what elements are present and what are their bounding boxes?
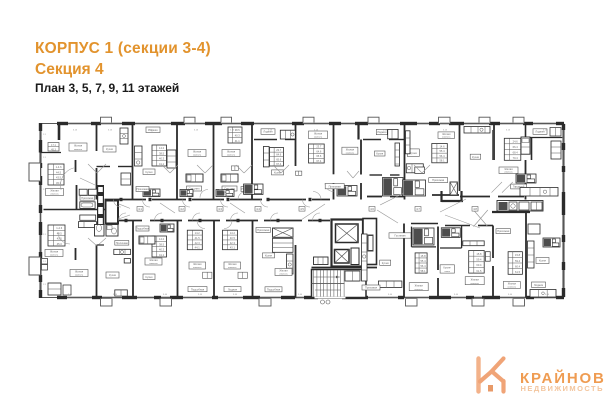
svg-text:Прихожая: Прихожая <box>81 196 94 200</box>
svg-text:Жилая: Жилая <box>74 144 83 148</box>
svg-text:15.8: 15.8 <box>420 254 426 258</box>
svg-text:2.1: 2.1 <box>43 157 47 159</box>
svg-text:Кухня: Кухня <box>146 170 154 174</box>
svg-text:61.5: 61.5 <box>476 269 482 273</box>
svg-text:комната: комната <box>415 289 424 291</box>
svg-text:55.4: 55.4 <box>439 149 445 153</box>
svg-text:Подсобная: Подсобная <box>191 287 205 291</box>
svg-text:Кухня-: Кухня- <box>443 266 451 270</box>
svg-text:42.3: 42.3 <box>230 241 236 245</box>
svg-text:Жилая: Жилая <box>227 150 236 154</box>
svg-text:56.4: 56.4 <box>420 264 426 268</box>
svg-text:комната: комната <box>50 255 59 257</box>
svg-text:Кухня: Кухня <box>539 259 547 263</box>
svg-text:3.40: 3.40 <box>298 294 303 296</box>
svg-text:Кухня: Кухня <box>109 273 117 277</box>
svg-text:55.4: 55.4 <box>420 259 426 263</box>
svg-text:Жилая: Жилая <box>75 270 84 274</box>
svg-text:4.3: 4.3 <box>218 207 222 211</box>
svg-text:Прихожая: Прихожая <box>116 241 129 245</box>
svg-text:комната: комната <box>504 172 513 174</box>
svg-text:4.6: 4.6 <box>370 207 374 211</box>
svg-text:3.40: 3.40 <box>163 294 168 296</box>
svg-text:14.2: 14.2 <box>195 231 201 235</box>
svg-text:Жилая: Жилая <box>442 132 451 136</box>
svg-text:64.6: 64.6 <box>316 149 322 153</box>
svg-text:Прихожая: Прихожая <box>257 228 270 232</box>
svg-text:43.1: 43.1 <box>230 246 236 250</box>
svg-text:2.1: 2.1 <box>43 134 47 136</box>
svg-text:40.3: 40.3 <box>159 157 165 161</box>
svg-text:60.4: 60.4 <box>515 264 521 268</box>
svg-text:65.6: 65.6 <box>276 157 282 161</box>
svg-text:58.1: 58.1 <box>439 159 445 163</box>
svg-text:41.1: 41.1 <box>235 139 241 143</box>
svg-text:38.5: 38.5 <box>235 128 241 132</box>
svg-text:44.5: 44.5 <box>57 231 63 235</box>
svg-text:Кухня: Кухня <box>106 147 114 151</box>
svg-text:Жилая: Жилая <box>149 258 158 262</box>
svg-text:4.1: 4.1 <box>138 207 142 211</box>
svg-text:59.4: 59.4 <box>515 259 521 263</box>
svg-text:64.6: 64.6 <box>276 153 282 157</box>
svg-text:43.5: 43.5 <box>57 237 63 241</box>
svg-text:61.5: 61.5 <box>515 270 521 274</box>
svg-text:1-4.6: 1-4.6 <box>56 165 62 169</box>
svg-text:3.40: 3.40 <box>508 294 513 296</box>
svg-text:41.1: 41.1 <box>159 253 165 257</box>
svg-text:Жилая: Жилая <box>193 262 202 266</box>
svg-text:58.1: 58.1 <box>420 269 426 273</box>
svg-text:Жилая: Жилая <box>193 150 202 154</box>
svg-text:Гостиная: Гостиная <box>395 234 406 238</box>
svg-text:комната: комната <box>193 155 202 157</box>
svg-text:комната: комната <box>75 275 84 277</box>
svg-text:Прихожая: Прихожая <box>329 184 342 188</box>
svg-text:24.6: 24.6 <box>513 140 519 144</box>
svg-text:Жилая: Жилая <box>346 147 355 151</box>
svg-text:Жилая: Жилая <box>228 262 237 266</box>
svg-text:комната: комната <box>149 263 158 265</box>
svg-text:комната: комната <box>193 267 202 269</box>
svg-text:15.8: 15.8 <box>515 253 521 257</box>
svg-text:Жилая: Жилая <box>50 250 59 254</box>
svg-text:23.7: 23.7 <box>276 148 282 152</box>
svg-text:Кухня: Кухня <box>472 155 480 159</box>
svg-text:2.1: 2.1 <box>43 284 47 286</box>
svg-text:17.1: 17.1 <box>51 144 56 147</box>
svg-text:3.40: 3.40 <box>68 294 73 296</box>
svg-text:23.7: 23.7 <box>316 145 322 149</box>
svg-text:67.4: 67.4 <box>316 159 322 163</box>
svg-text:60.4: 60.4 <box>476 263 482 267</box>
svg-text:Прихожая: Прихожая <box>365 286 378 290</box>
svg-text:комната: комната <box>442 137 451 139</box>
svg-text:Жилая: Жилая <box>504 167 513 171</box>
svg-text:Жилая: Жилая <box>279 269 288 273</box>
svg-text:3.40: 3.40 <box>388 294 393 296</box>
svg-text:2.1: 2.1 <box>43 234 47 236</box>
svg-text:4.7: 4.7 <box>416 207 420 211</box>
svg-text:3.40: 3.40 <box>454 294 459 296</box>
svg-text:45.3: 45.3 <box>57 242 63 246</box>
svg-text:комната: комната <box>50 194 59 196</box>
svg-text:Жилая: Жилая <box>50 189 59 193</box>
svg-text:65.6: 65.6 <box>316 154 322 158</box>
svg-text:3.13: 3.13 <box>506 130 511 132</box>
svg-text:3.13: 3.13 <box>194 130 199 132</box>
svg-text:Жилая: Жилая <box>415 283 424 287</box>
svg-text:Подсобная: Подсобная <box>136 227 150 231</box>
svg-text:38.5: 38.5 <box>159 242 165 246</box>
svg-text:комната: комната <box>346 152 355 154</box>
svg-text:40.3: 40.3 <box>235 133 241 137</box>
svg-text:3.40: 3.40 <box>233 294 238 296</box>
svg-text:43.5: 43.5 <box>56 176 62 180</box>
svg-text:56.4: 56.4 <box>439 154 445 158</box>
svg-text:Кухня: Кухня <box>410 151 418 155</box>
svg-text:3.40: 3.40 <box>198 294 203 296</box>
svg-text:14.6: 14.6 <box>439 144 445 148</box>
svg-text:Подсобная: Подсобная <box>267 287 281 291</box>
svg-text:44.1: 44.1 <box>195 246 201 250</box>
svg-text:40.3: 40.3 <box>159 248 165 252</box>
svg-text:Прихожая: Прихожая <box>136 187 149 191</box>
svg-text:комната: комната <box>471 283 480 285</box>
svg-text:комната: комната <box>74 149 83 151</box>
svg-text:14.2: 14.2 <box>230 231 236 235</box>
svg-text:Лоджия: Лоджия <box>534 283 544 287</box>
svg-text:комната: комната <box>314 137 323 139</box>
svg-text:1-4.6: 1-4.6 <box>56 226 62 230</box>
svg-text:68.4: 68.4 <box>513 151 519 155</box>
svg-text:41.5: 41.5 <box>195 236 201 240</box>
svg-text:38.5: 38.5 <box>159 151 165 155</box>
svg-text:Кухня: Кухня <box>265 254 273 258</box>
svg-text:Кухня: Кухня <box>146 275 154 279</box>
svg-text:3.13: 3.13 <box>73 130 78 132</box>
svg-text:3.13: 3.13 <box>443 130 448 132</box>
svg-text:Жилая: Жилая <box>471 277 480 281</box>
svg-text:Прихожая: Прихожая <box>432 178 445 182</box>
svg-text:15.8: 15.8 <box>476 252 482 256</box>
svg-text:Жилая: Жилая <box>314 131 323 135</box>
svg-text:Прихожая: Прихожая <box>497 229 510 233</box>
svg-text:ниша: ниша <box>445 271 451 273</box>
svg-text:3.13: 3.13 <box>108 130 113 132</box>
svg-text:42.3: 42.3 <box>195 241 201 245</box>
svg-text:14.2: 14.2 <box>159 237 165 241</box>
svg-text:70.4: 70.4 <box>513 156 519 160</box>
svg-text:44.5: 44.5 <box>56 170 62 174</box>
svg-text:59.4: 59.4 <box>476 258 482 262</box>
svg-text:4.5: 4.5 <box>300 207 304 211</box>
svg-text:комната: комната <box>227 155 236 157</box>
svg-text:Жилая: Жилая <box>508 282 517 286</box>
svg-text:67.4: 67.4 <box>276 162 282 166</box>
svg-text:комната: комната <box>279 274 288 276</box>
svg-text:Лоджия: Лоджия <box>228 287 238 291</box>
svg-text:40.5: 40.5 <box>230 236 236 240</box>
svg-text:Кухня: Кухня <box>382 261 390 265</box>
svg-text:комната: комната <box>508 287 517 289</box>
svg-text:4.2: 4.2 <box>180 207 184 211</box>
svg-text:Кухня: Кухня <box>376 152 384 156</box>
svg-text:комната: комната <box>228 267 237 269</box>
svg-text:4.4: 4.4 <box>256 207 260 211</box>
svg-text:14.2: 14.2 <box>159 146 165 150</box>
svg-text:4.8: 4.8 <box>473 207 477 211</box>
svg-text:66.4: 66.4 <box>513 145 519 149</box>
svg-text:45.3: 45.3 <box>51 149 56 152</box>
